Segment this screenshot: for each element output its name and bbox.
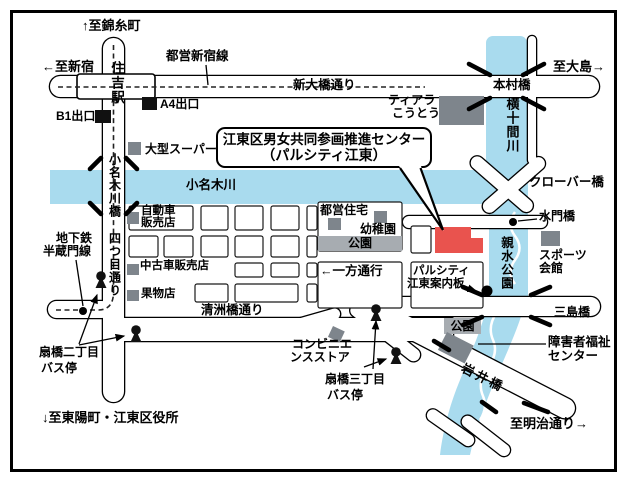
dir-meiji: 至明治通り→ (510, 417, 588, 431)
exit-b1-marker (95, 110, 111, 123)
yotsume-dori-label: 四つ目通り (108, 232, 120, 297)
suimon-bridge-dot (509, 218, 517, 226)
mishima-bridge-label: 三島橋 (554, 306, 590, 318)
sports-hall-label-1: スポーツ (539, 249, 587, 261)
info-board-label-1: パルシティ (413, 266, 470, 278)
block (201, 206, 228, 230)
ogibashi3-bus-label-1: 扇橋三丁目 (325, 373, 385, 385)
info-board-label-2: 江東案内板 (407, 279, 465, 291)
callout-line1: 江東区男女共同参画推進センター (223, 132, 426, 148)
suimon-bridge-label: 水門橋 (539, 210, 575, 222)
block (307, 263, 317, 277)
destination-callout: 江東区男女共同参画推進センター （パルシティ江東） (216, 127, 432, 168)
ogibashi3-bus-label-2: バス停 (327, 389, 363, 401)
kiyosubashi-dori-label: 清洲橋通り (201, 304, 264, 317)
block (235, 206, 263, 230)
onagigawa-bridge-mark (90, 203, 101, 214)
toei-shinjuku-line-label: 都営新宿線 (166, 50, 229, 63)
supermarket-label: 大型スーパー (145, 143, 217, 155)
sports-hall-label-2: 会館 (539, 262, 563, 274)
welfare-center-label-1: 障害者福祉 (548, 336, 611, 349)
ogibashi3-arrow-2 (364, 359, 386, 367)
info-board-dot (482, 286, 493, 297)
tiara-koto-label-1: ティアラ (388, 94, 435, 106)
block (235, 263, 263, 277)
clover-bridge-label: クローバー橋 (529, 176, 604, 189)
kindergarten-label: 幼稚園 (360, 223, 396, 235)
block (307, 206, 317, 230)
hanzomon-label-2: 半蔵門線 (43, 245, 91, 257)
sports-hall-marker (541, 231, 560, 246)
mishima-bridge-mark (531, 317, 550, 325)
yokojukken-river-label: 横十間川 (505, 97, 519, 153)
block (235, 236, 263, 257)
car-dealer-label-2: 販売店 (141, 218, 176, 230)
exit-b1-label: B1出口 (56, 110, 95, 122)
dir-toyocho: ↓至東陽町・江東区役所 (42, 411, 179, 425)
fruit-shop-marker (127, 290, 139, 301)
one-way-label: ←一方通行 (320, 265, 383, 278)
tiara-koto-building (439, 96, 484, 125)
block (195, 284, 228, 302)
supermarket-marker (128, 142, 141, 155)
hanzomon-line-dot (79, 307, 87, 315)
motomura-bridge-label: 本村橋 (493, 79, 531, 92)
ogibashi2-bus-label-1: 扇橋二丁目 (39, 346, 99, 358)
onagigawa-bridge-mark (90, 158, 101, 169)
palcity-koto-building (435, 227, 483, 253)
block (411, 226, 431, 253)
used-car-label: 中古車販売店 (140, 261, 209, 273)
block (271, 206, 299, 230)
hanzomon-label-1: 地下鉄 (56, 232, 92, 244)
shinsui-park-label: 親水公園 (499, 236, 512, 290)
block (271, 236, 299, 257)
shin-ohashi-dori-label: 新大橋通り (293, 79, 356, 92)
block (201, 236, 228, 257)
welfare-center-label-2: センター (548, 350, 598, 363)
dir-ojima: 至大島→ (553, 60, 605, 74)
block (235, 284, 298, 302)
tiara-koto-label-2: こうとう (392, 107, 440, 119)
used-car-marker (127, 264, 139, 275)
park-upper-label: 公園 (318, 237, 402, 249)
ogibashi2-bus-label-2: バス停 (41, 362, 77, 374)
toei-housing-label: 都営住宅 (320, 204, 368, 216)
bus-stop-ogibashi3-2 (391, 347, 402, 364)
access-map: ↑至錦糸町 ←至新宿 都営新宿線 住吉駅 B1出口 A4出口 大型スーパー 新大… (0, 0, 627, 485)
park-lower-label: 公園 (444, 320, 481, 332)
fruit-shop-label: 果物店 (141, 289, 176, 301)
toei-housing-marker (328, 218, 341, 230)
callout-line2: （パルシティ江東） (261, 147, 386, 163)
hanzomon-pointer (76, 260, 83, 306)
exit-a4-marker (142, 97, 157, 110)
dir-shinjuku: ←至新宿 (42, 60, 94, 74)
sumiyoshi-station-label: 住吉駅 (109, 61, 123, 105)
dir-kinshicho: ↑至錦糸町 (82, 19, 141, 33)
block (164, 236, 193, 257)
convenience-label-1: コンビニエ (292, 338, 352, 350)
block (271, 263, 299, 277)
block (129, 236, 158, 257)
onagigawa-bridge-label: 小名木川橋 (108, 153, 120, 218)
block (307, 236, 317, 257)
onagi-river-label: 小名木川 (186, 179, 236, 192)
mishima-bridge-mark (531, 287, 550, 295)
exit-a4-label: A4出口 (160, 98, 199, 110)
onagigawa-bridge-mark (126, 158, 137, 169)
convenience-label-2: ンスストア (290, 351, 350, 363)
block (307, 284, 317, 302)
